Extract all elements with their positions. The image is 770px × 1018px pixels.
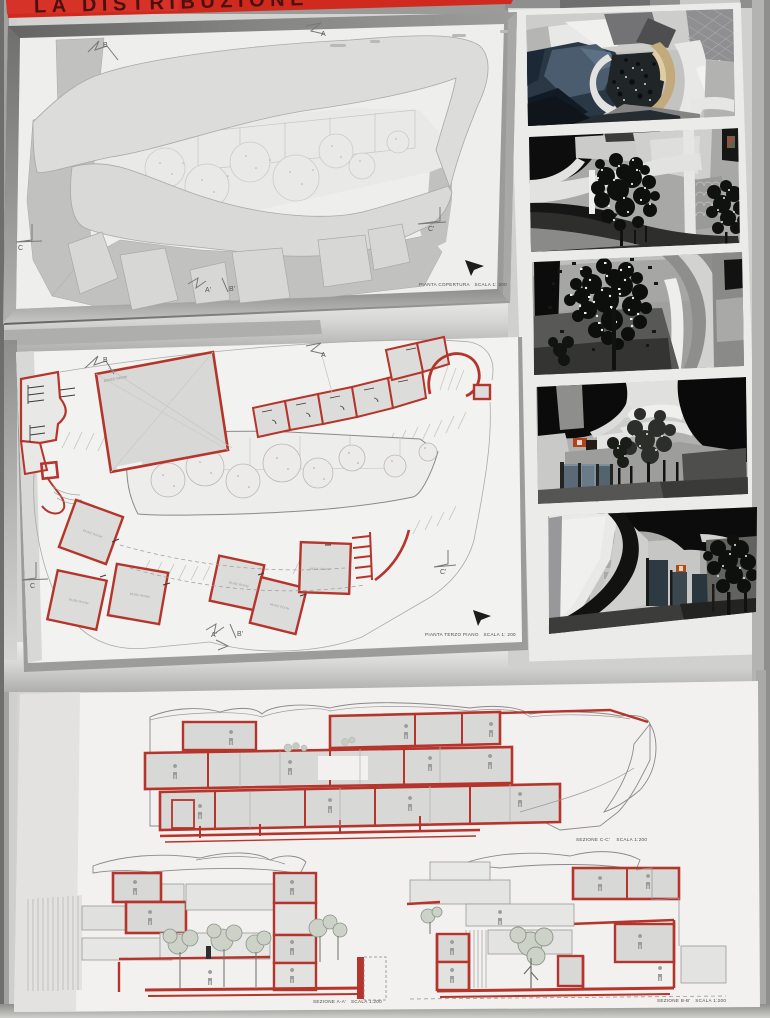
svg-text:C': C' [428,226,434,233]
svg-text:B: B [103,357,108,364]
svg-text:A: A [321,352,326,359]
svg-text:C: C [30,583,35,590]
svg-text:MUSIC ROOM: MUSIC ROOM [310,566,330,571]
svg-text:C: C [18,245,23,252]
svg-text:PIANTA COPERTURA SCALA 1: 20: PIANTA COPERTURA SCALA 1: 200 [419,282,507,287]
svg-text:PIANTA TERZO PIANO SCALA 1:: PIANTA TERZO PIANO SCALA 1: 200 [425,632,516,637]
svg-text:SEZIONE A-A' SCALA 1:200: SEZIONE A-A' SCALA 1:200 [313,999,382,1004]
svg-text:B': B' [229,286,235,293]
svg-text:B: B [103,42,108,49]
svg-text:A': A' [205,287,211,294]
svg-text:B': B' [237,631,243,638]
svg-text:A: A [321,31,326,38]
svg-text:A': A' [211,632,217,639]
svg-text:SEZIONE B-B' SCALA 1:200: SEZIONE B-B' SCALA 1:200 [657,998,726,1003]
svg-text:SEZIONE C-C' SCALA 1:200: SEZIONE C-C' SCALA 1:200 [576,837,647,842]
svg-text:C': C' [440,569,446,576]
